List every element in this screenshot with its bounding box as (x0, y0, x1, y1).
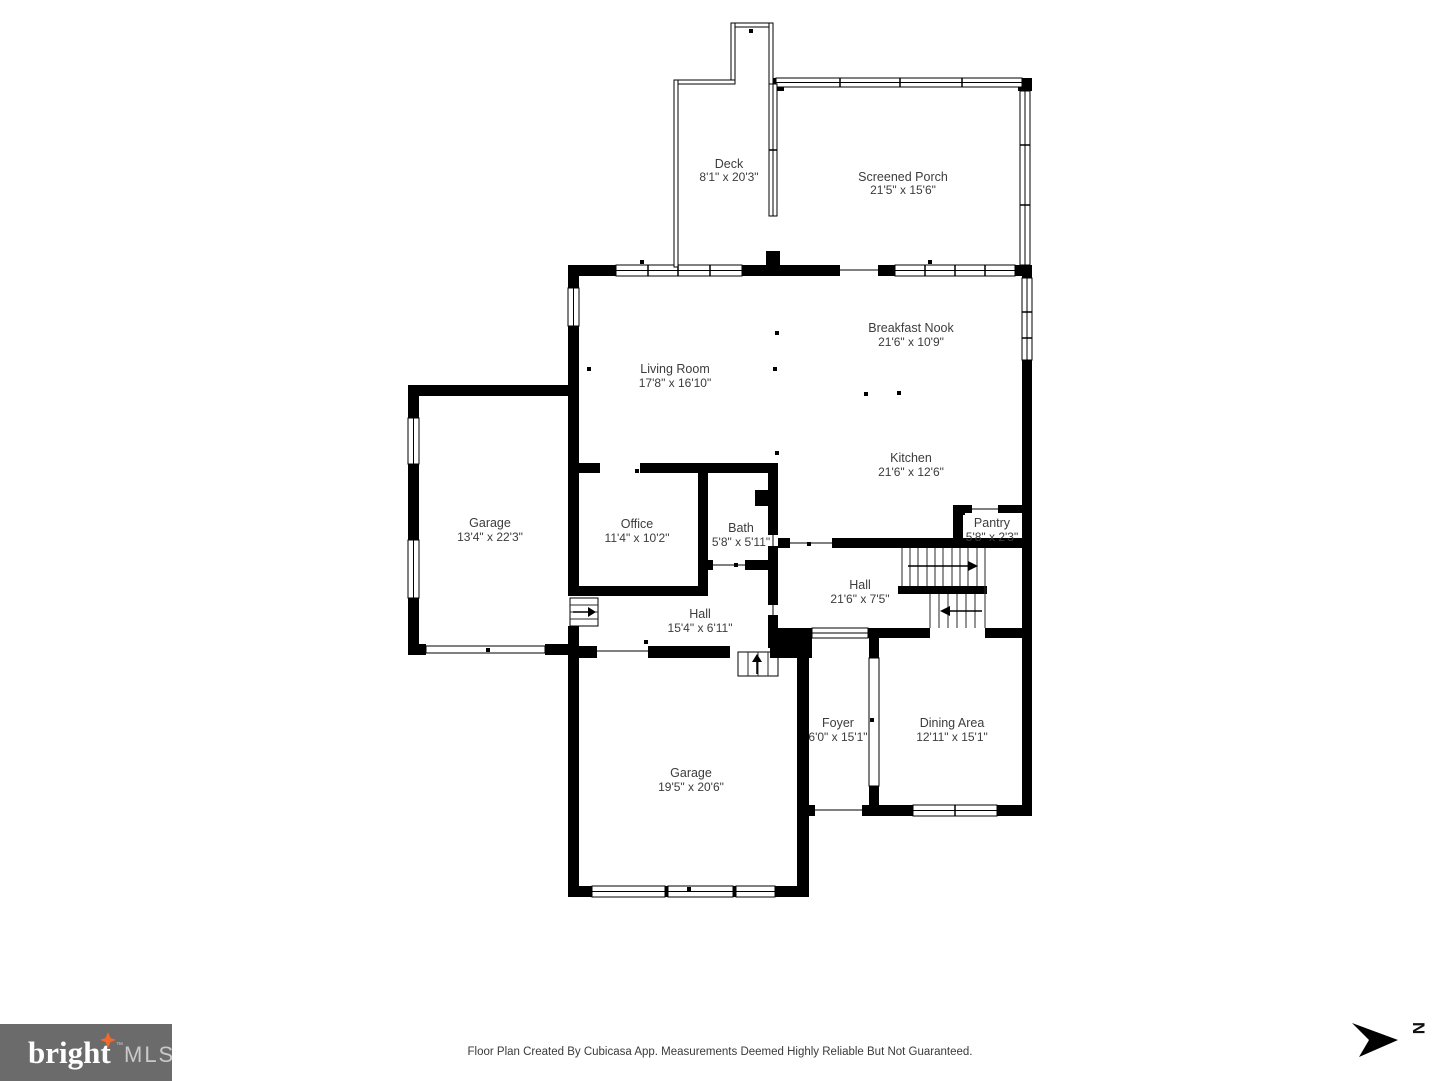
room-label-pantry: Pantry (974, 516, 1011, 530)
disclaimer-text: Floor Plan Created By Cubicasa App. Meas… (468, 1046, 973, 1058)
room-label-hall-upper: Hall (849, 578, 871, 592)
logo-suffix-text: MLS (124, 1042, 175, 1067)
room-dims-foyer: 6'0" x 15'1" (808, 730, 867, 744)
room-dims-office: 11'4" x 10'2" (605, 531, 670, 545)
room-label-dining-area: Dining Area (920, 716, 985, 730)
room-label-screened-porch: Screened Porch (858, 170, 948, 184)
footer: bright ™ MLS Floor Plan Created By Cubic… (0, 1022, 1428, 1081)
room-dims-breakfast-nook: 21'6" x 10'9" (878, 335, 944, 349)
room-label-office: Office (621, 517, 653, 531)
room-label-deck: Deck (715, 157, 744, 171)
logo-brand-text: bright (28, 1035, 111, 1070)
room-label-bath: Bath (728, 521, 754, 535)
room-dims-screened-porch: 21'5" x 15'6" (870, 183, 936, 197)
room-label-garage-left: Garage (469, 516, 511, 530)
room-dims-garage-bottom: 19'5" x 20'6" (658, 780, 724, 794)
room-dims-garage-left: 13'4" x 22'3" (457, 530, 523, 544)
room-dims-dining-area: 12'11" x 15'1" (916, 730, 988, 744)
room-label-kitchen: Kitchen (890, 451, 932, 465)
room-label-garage-bottom: Garage (670, 766, 712, 780)
deck-railing (674, 23, 773, 267)
compass-arrow-icon (1352, 1023, 1398, 1057)
logo-tm: ™ (116, 1042, 123, 1049)
room-label-breakfast-nook: Breakfast Nook (868, 321, 954, 335)
hall-steps (570, 598, 598, 626)
room-label-foyer: Foyer (822, 716, 854, 730)
floor-plan-page: Deck 8'1" x 20'3" Screened Porch 21'5" x… (0, 0, 1440, 1081)
room-labels: Deck 8'1" x 20'3" Screened Porch 21'5" x… (457, 157, 1018, 794)
room-label-living-room: Living Room (640, 362, 709, 376)
room-dims-living-room: 17'8" x 16'10" (639, 376, 712, 390)
compass-north-label: N (1409, 1022, 1428, 1034)
room-dims-bath: 5'8" x 5'11" (712, 535, 770, 549)
windows (408, 265, 1032, 897)
room-dims-hall-lower: 15'4" x 6'11" (668, 621, 733, 635)
room-dims-pantry: 5'8" x 2'3" (966, 530, 1018, 544)
room-label-hall-lower: Hall (689, 607, 711, 621)
room-dims-kitchen: 21'6" x 12'6" (878, 465, 944, 479)
room-dims-deck: 8'1" x 20'3" (699, 170, 758, 184)
floorplan-svg: Deck 8'1" x 20'3" Screened Porch 21'5" x… (0, 0, 1440, 1081)
house-walls (408, 78, 1032, 897)
room-dims-hall-upper: 21'6" x 7'5" (830, 592, 889, 606)
main-stairs-lower (930, 594, 982, 628)
